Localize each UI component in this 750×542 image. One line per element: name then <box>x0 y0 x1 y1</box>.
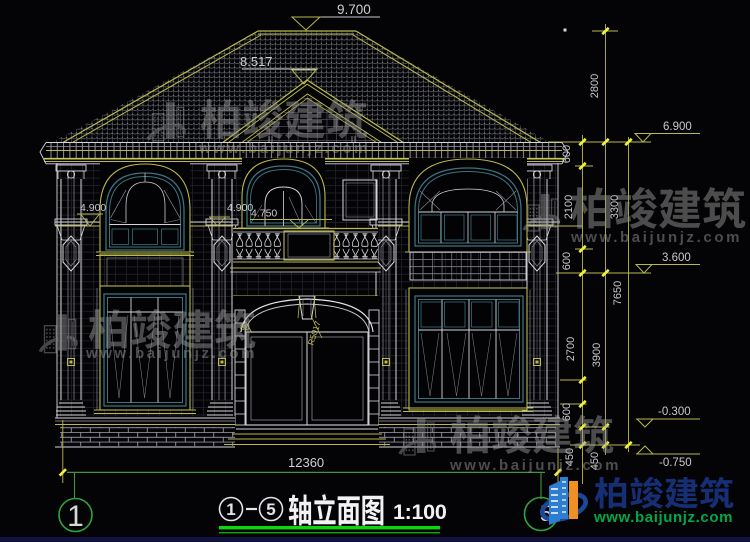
svg-text:9.700: 9.700 <box>337 2 371 17</box>
svg-text:7650: 7650 <box>612 281 624 305</box>
svg-text:12360: 12360 <box>288 455 324 470</box>
svg-text:www.baijunjz.com: www.baijunjz.com <box>570 229 742 246</box>
svg-text:4.900: 4.900 <box>80 202 106 214</box>
svg-text:www.baijunjz.com: www.baijunjz.com <box>593 509 733 526</box>
svg-text:6.900: 6.900 <box>663 121 692 133</box>
svg-text:4.750: 4.750 <box>251 208 277 220</box>
svg-text:1:100: 1:100 <box>393 500 447 524</box>
svg-text:-0.750: -0.750 <box>659 457 692 469</box>
svg-text:2700: 2700 <box>565 337 577 361</box>
svg-text:3.600: 3.600 <box>662 252 691 264</box>
svg-text:600: 600 <box>561 252 573 270</box>
svg-text:600: 600 <box>561 145 573 163</box>
svg-text:-0.300: -0.300 <box>658 406 691 418</box>
svg-text:www.baijunjz.com: www.baijunjz.com <box>449 457 621 474</box>
svg-text:2800: 2800 <box>589 74 601 98</box>
svg-text:3900: 3900 <box>591 343 603 367</box>
svg-text:www.baijunjz.com: www.baijunjz.com <box>85 345 257 362</box>
svg-text:8.517: 8.517 <box>240 54 273 69</box>
svg-text:1: 1 <box>67 500 84 533</box>
svg-text:5: 5 <box>266 500 275 519</box>
svg-text:4.900: 4.900 <box>227 202 253 214</box>
svg-text:www.baijunjz.com: www.baijunjz.com <box>198 140 370 157</box>
svg-text:1: 1 <box>226 500 235 519</box>
